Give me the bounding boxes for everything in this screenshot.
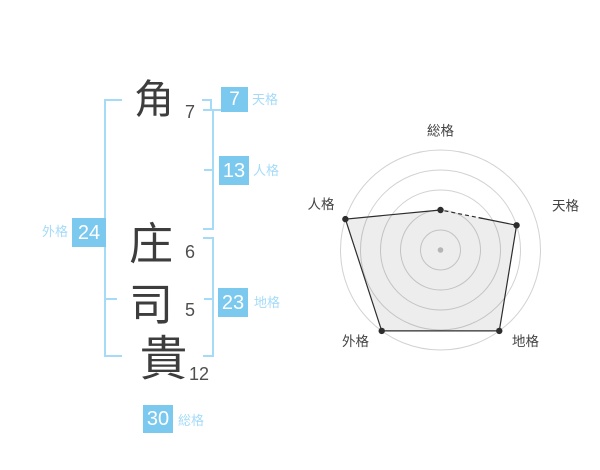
radar-data-area: [345, 210, 516, 331]
name-analysis-page: 角 7 庄 6 司 5 貴 12 7 天格 13 人格 外格 24 23 地格 …: [0, 0, 600, 470]
radar-axis-label: 外格: [342, 334, 369, 349]
radar-data-point: [437, 207, 443, 213]
radar-axis-label: 天格: [552, 199, 580, 214]
radar-data-point: [342, 216, 348, 222]
radar-chart: 総格天格地格外格人格: [0, 0, 600, 470]
radar-axis-label: 総格: [427, 124, 454, 139]
radar-axis-label: 地格: [512, 334, 540, 349]
radar-data-point: [379, 328, 385, 334]
radar-data-point: [513, 222, 519, 228]
radar-center-dot: [438, 247, 444, 253]
radar-data-point: [496, 328, 502, 334]
radar-axis-label: 人格: [308, 197, 335, 212]
